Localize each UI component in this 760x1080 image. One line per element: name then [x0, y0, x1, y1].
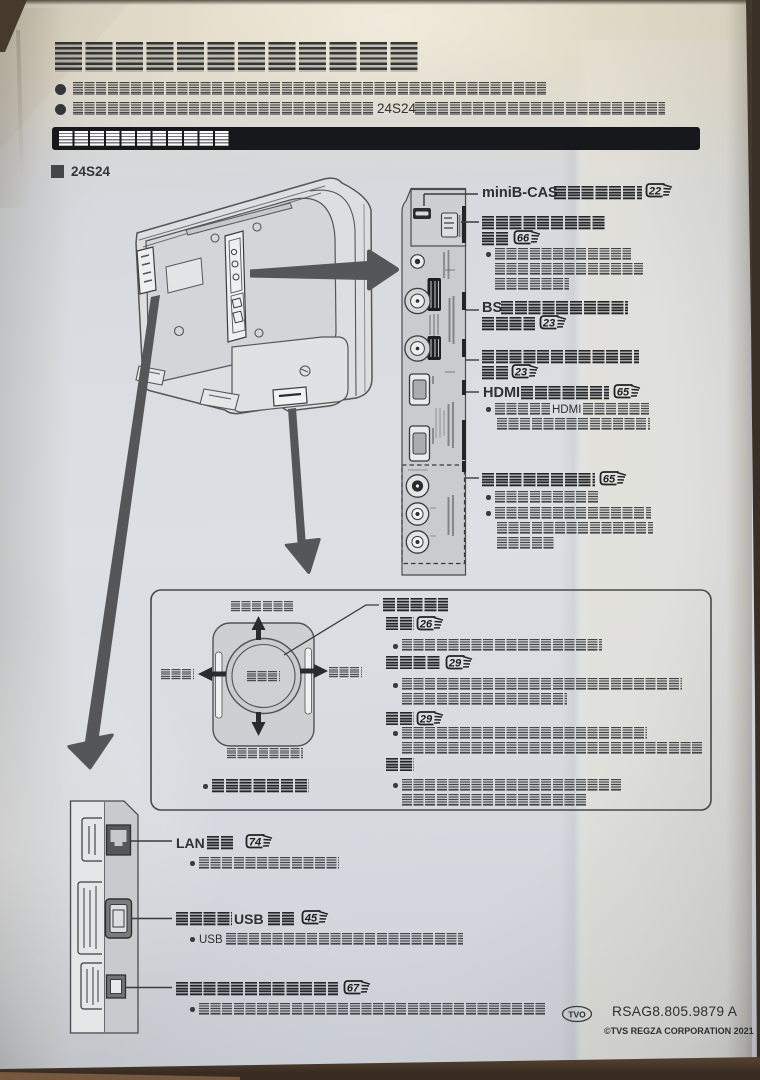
svg-text:TVO: TVO — [568, 1010, 586, 1020]
svg-text:29: 29 — [448, 658, 462, 670]
svg-text:29: 29 — [419, 714, 433, 726]
svg-text:67: 67 — [347, 983, 360, 995]
svg-text:65: 65 — [603, 474, 616, 486]
svg-text:74: 74 — [249, 837, 261, 849]
svg-text:26: 26 — [419, 619, 433, 631]
svg-text:45: 45 — [304, 913, 318, 925]
svg-text:23: 23 — [514, 367, 527, 379]
svg-text:66: 66 — [517, 233, 530, 245]
svg-text:23: 23 — [542, 318, 555, 330]
svg-text:65: 65 — [617, 387, 630, 399]
svg-text:22: 22 — [648, 186, 661, 198]
